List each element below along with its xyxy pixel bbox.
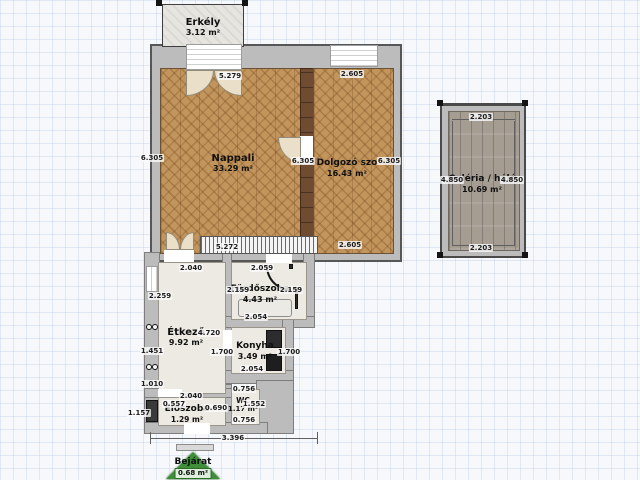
dimension-tick xyxy=(317,432,318,444)
dimension-label: 4.850 xyxy=(500,176,524,184)
dimension-label: 3.396 xyxy=(221,434,245,442)
dimension-label: 0.756 xyxy=(232,385,256,393)
dimension-label: 2.259 xyxy=(148,292,172,300)
room-label-erkely: Erkély 3.12 m² xyxy=(186,17,221,37)
room-name: Dolgozó szo xyxy=(317,158,378,169)
dolgozo-window xyxy=(330,45,378,67)
room-area: 0.68 m² xyxy=(175,468,212,479)
room-label-dolgozo: Dolgozó szo 16.43 m² xyxy=(317,158,378,178)
room-name: Bejárat xyxy=(175,457,212,468)
dimension-label: 2.040 xyxy=(179,392,203,400)
room-name: Konyha xyxy=(236,341,274,352)
room-name: Erkély xyxy=(186,17,221,28)
dimension-label: 2.159 xyxy=(279,286,303,294)
room-area: 9.92 m² xyxy=(167,338,204,347)
wall-cap xyxy=(437,252,443,258)
dimension-label: 2.203 xyxy=(469,244,493,252)
dimension-label: 0.557 xyxy=(162,400,186,408)
wall-cap xyxy=(522,252,528,258)
dimension-label: 2.054 xyxy=(240,365,264,373)
dimension-label: 2.605 xyxy=(340,70,364,78)
valve-symbol xyxy=(152,324,158,330)
dimension-label: 4.850 xyxy=(440,176,464,184)
dimension-label: 4.720 xyxy=(197,329,221,337)
dimension-label: 0.756 xyxy=(232,416,256,424)
dimension-label: 6.305 xyxy=(377,157,401,165)
dimension-label: 6.305 xyxy=(291,157,315,165)
dimension-label: 5.279 xyxy=(218,72,242,80)
nappali-etkezo-door-opening xyxy=(164,250,194,262)
dimension-label: 6.305 xyxy=(140,154,164,162)
room-area: 1.29 m² xyxy=(165,415,210,424)
dimension-tick xyxy=(150,432,151,444)
room-area: 3.12 m² xyxy=(186,28,221,37)
room-area: 16.43 m² xyxy=(317,169,378,178)
wall-cap xyxy=(242,0,248,6)
wall-cap xyxy=(156,0,162,6)
dimension-label: 0.690 xyxy=(204,404,228,412)
room-area: 10.69 m² xyxy=(448,185,516,194)
dimension-label: 2.059 xyxy=(250,264,274,272)
wall-cap xyxy=(437,100,443,106)
room-area: 3.49 m² xyxy=(236,352,274,361)
dimension-label: 1.157 xyxy=(127,409,151,417)
room-area: 33.29 m² xyxy=(211,164,254,173)
balcony-door-opening xyxy=(186,44,242,70)
entrance-door-opening xyxy=(184,423,210,434)
dimension-label: 2.605 xyxy=(338,241,362,249)
room-label-konyha: Konyha 3.49 m² xyxy=(236,341,274,361)
dimension-label: 2.159 xyxy=(226,286,250,294)
room-label-nappali: Nappali 33.29 m² xyxy=(211,153,254,173)
dimension-label: 2.040 xyxy=(179,264,203,272)
room-name: Nappali xyxy=(211,153,254,164)
etkezo-window xyxy=(146,266,158,292)
dimension-label: 1.451 xyxy=(140,347,164,355)
dimension-label: 1.700 xyxy=(277,348,301,356)
entrance-threshold xyxy=(176,444,214,451)
valve-symbol xyxy=(152,364,158,370)
dimension-label: 1.010 xyxy=(140,380,164,388)
wall-cap xyxy=(522,100,528,106)
dimension-label: 2.054 xyxy=(244,313,268,321)
floor-plan-canvas: Erkély 3.12 m² Nappali 33.29 m² Dolgozó … xyxy=(0,0,640,480)
dimension-label: 1.552 xyxy=(242,400,266,408)
dimension-label: 5.272 xyxy=(215,243,239,251)
room-label-bejarat: Bejárat 0.68 m² xyxy=(175,457,212,479)
dimension-label: 1.700 xyxy=(210,348,234,356)
dimension-label: 2.203 xyxy=(469,113,493,121)
room-area: 4.43 m² xyxy=(231,295,289,304)
